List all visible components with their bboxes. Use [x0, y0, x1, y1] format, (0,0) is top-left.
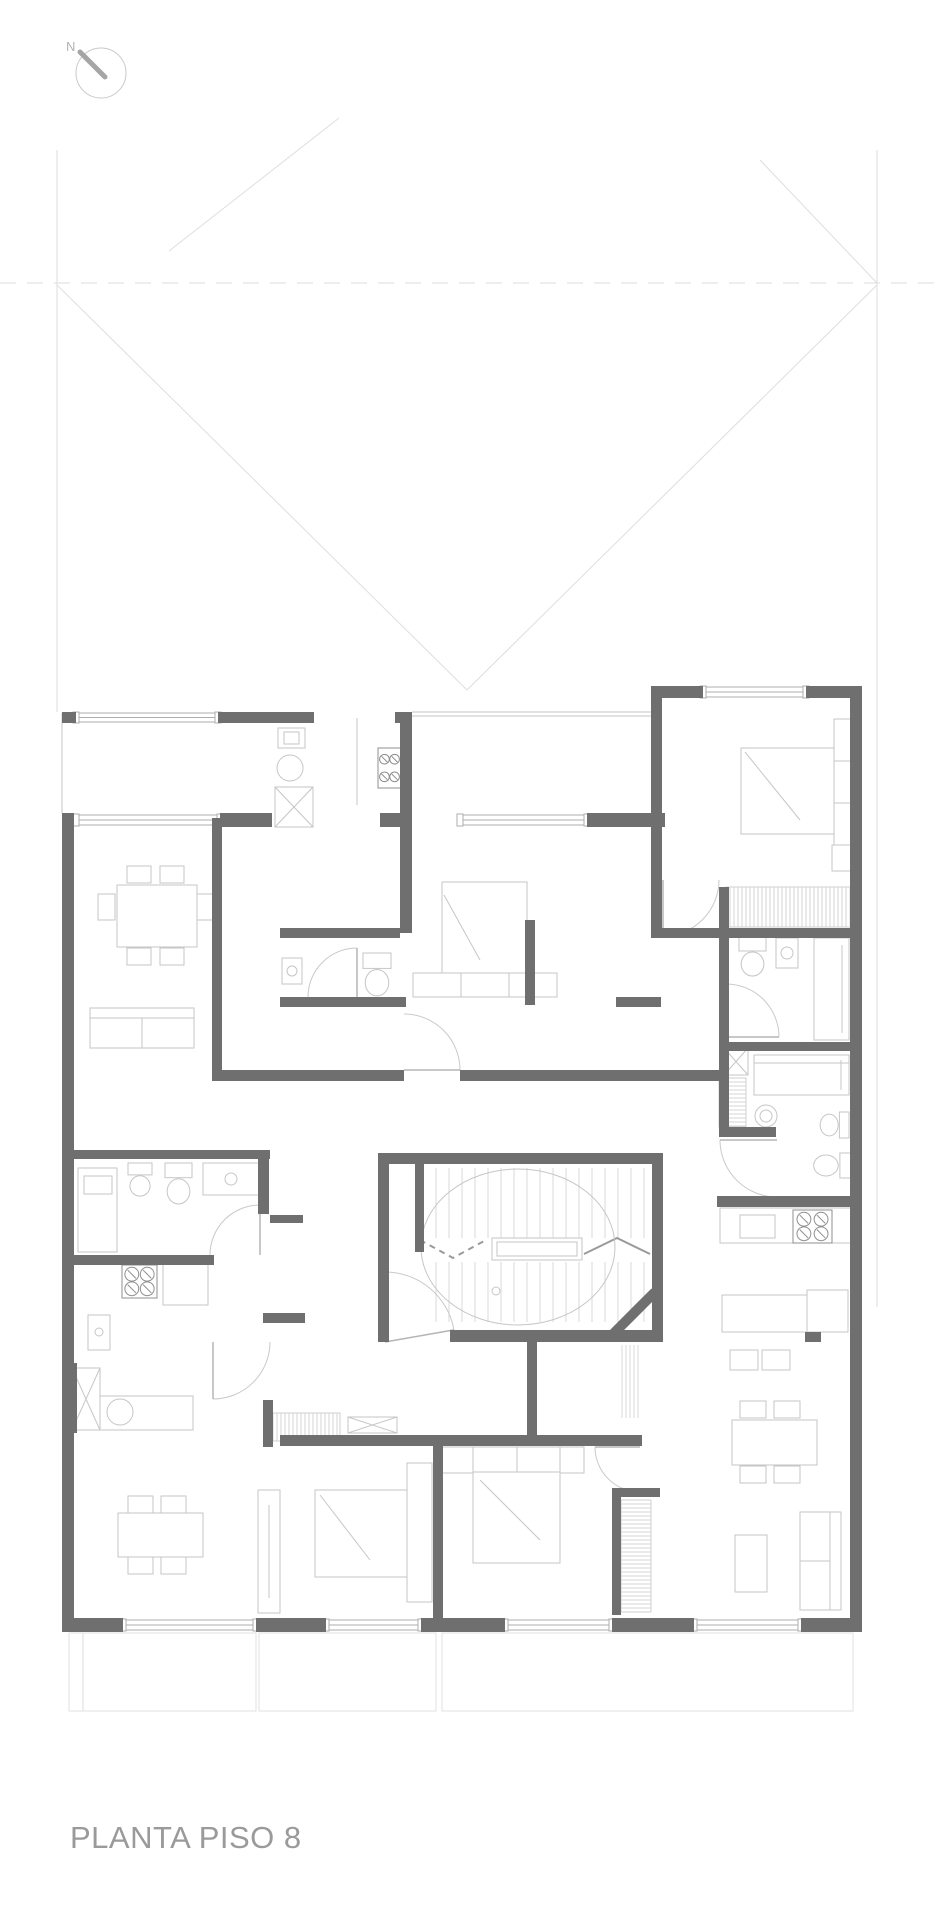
furniture-outline	[163, 1263, 208, 1305]
construction-line	[169, 118, 339, 251]
furniture-outline	[128, 1496, 153, 1513]
wall	[67, 1150, 270, 1159]
door-arc	[404, 1014, 460, 1070]
furniture-outline	[722, 1295, 807, 1332]
construction-line	[467, 285, 877, 690]
wall	[400, 712, 412, 933]
furniture-outline	[735, 1535, 767, 1592]
furniture-outline	[284, 732, 299, 744]
furniture-outline	[741, 748, 834, 834]
furniture-outline	[282, 958, 302, 984]
door-arc	[595, 1447, 640, 1492]
stair-direction-line	[584, 1238, 650, 1254]
fixture-circle	[755, 1105, 777, 1127]
wall-diagonal	[613, 1292, 655, 1334]
door-arc	[213, 1342, 270, 1399]
furniture-outline	[407, 1463, 432, 1602]
floor-plan-svg	[0, 0, 936, 1920]
furniture-outline	[127, 866, 151, 883]
wall	[62, 712, 76, 723]
door-leaf	[385, 1330, 454, 1342]
wall	[280, 928, 400, 938]
wall	[612, 1618, 694, 1632]
wall	[212, 818, 222, 1070]
wall	[616, 997, 661, 1007]
stove-icon	[378, 748, 401, 788]
wall	[67, 1363, 77, 1433]
wall	[263, 1400, 273, 1447]
construction-line	[760, 160, 877, 283]
wall	[460, 1070, 722, 1081]
furniture-outline	[774, 1401, 800, 1418]
wall	[280, 1435, 642, 1446]
wall	[651, 686, 703, 698]
furniture-outline	[118, 1513, 203, 1557]
construction-line	[57, 285, 467, 690]
toilet-tank	[128, 1163, 152, 1175]
door-arc	[726, 984, 779, 1037]
furniture-outline	[197, 894, 214, 920]
wall	[62, 813, 74, 1632]
wall	[421, 1618, 505, 1632]
furniture-outline	[807, 1290, 848, 1332]
wall	[527, 1342, 537, 1438]
furniture-outline	[814, 938, 849, 1040]
wall	[525, 920, 535, 1005]
wall	[719, 1127, 776, 1137]
furniture-outline	[774, 1466, 800, 1483]
furniture-outline	[740, 1401, 766, 1418]
balcony-outline	[259, 1633, 436, 1711]
toilet-bowl	[365, 970, 389, 996]
furniture-outline	[497, 1242, 577, 1256]
wall	[651, 698, 662, 938]
door-arc	[385, 1272, 454, 1330]
furniture-outline	[88, 1315, 110, 1350]
wall	[378, 1164, 389, 1342]
door-arc	[308, 948, 357, 997]
wall	[256, 1618, 326, 1632]
wall	[263, 1313, 305, 1323]
wall	[719, 887, 729, 1135]
fixture-circle	[760, 1110, 772, 1122]
wall	[270, 1215, 303, 1223]
wall	[415, 1164, 424, 1252]
wall	[651, 928, 860, 938]
door-arc	[663, 880, 719, 936]
wall	[450, 1330, 663, 1342]
furniture-outline	[203, 1163, 260, 1195]
wall	[726, 1042, 860, 1051]
wall	[378, 1153, 663, 1164]
wall	[218, 712, 314, 723]
furniture-outline	[84, 1176, 112, 1194]
furniture-outline	[762, 1350, 790, 1370]
toilet-tank	[739, 937, 766, 951]
plan-title: PLANTA PISO 8	[70, 1820, 302, 1856]
furniture-outline	[413, 973, 557, 997]
toilet-bowl	[167, 1179, 190, 1204]
balcony-outline	[442, 1633, 853, 1711]
furniture-outline	[440, 1447, 473, 1473]
toilet-tank	[363, 953, 391, 968]
fixture-circle	[492, 1287, 500, 1295]
wall	[67, 1255, 214, 1265]
door-arc	[210, 1205, 260, 1255]
wall	[258, 1150, 269, 1214]
balcony-outline	[69, 1633, 256, 1711]
toilet-tank	[165, 1163, 192, 1178]
wall	[717, 1196, 860, 1207]
wall	[212, 1070, 404, 1081]
furniture-outline	[88, 1396, 193, 1430]
furniture-outline	[315, 1490, 407, 1577]
furniture-outline	[161, 1496, 186, 1513]
furniture-outline	[730, 1350, 758, 1370]
wall	[850, 686, 862, 1632]
furniture-outline	[740, 1215, 775, 1238]
furniture-outline	[98, 894, 115, 920]
furniture-outline	[117, 885, 197, 947]
furniture-outline	[560, 1447, 584, 1473]
toilet-bowl	[820, 1114, 838, 1136]
wall	[652, 1164, 663, 1342]
wall	[433, 1446, 443, 1618]
toilet-bowl	[741, 952, 764, 976]
window-jamb	[457, 814, 463, 826]
furniture-outline	[442, 882, 527, 973]
fixture-circle	[277, 755, 303, 781]
stove-icon	[122, 1265, 157, 1298]
furniture-outline	[754, 1055, 849, 1095]
furniture-outline	[128, 1557, 153, 1574]
wall	[220, 813, 272, 827]
furniture-outline	[127, 948, 151, 965]
wall	[801, 1618, 862, 1632]
furniture-outline	[161, 1557, 186, 1574]
toilet-bowl	[814, 1155, 839, 1176]
wall	[805, 1332, 821, 1342]
page: N PLANTA PISO 8	[0, 0, 936, 1920]
furniture-outline	[732, 1420, 817, 1465]
furniture-outline	[160, 866, 184, 883]
furniture-outline	[776, 938, 798, 968]
furniture-outline	[740, 1466, 766, 1483]
stair-direction-line	[420, 1240, 486, 1258]
toilet-bowl	[130, 1176, 150, 1196]
furniture-outline	[160, 948, 184, 965]
wall	[69, 1618, 123, 1632]
wall	[612, 1493, 621, 1615]
toilet-tank	[839, 1112, 849, 1138]
door-arc	[720, 1140, 777, 1197]
wall	[280, 997, 406, 1007]
